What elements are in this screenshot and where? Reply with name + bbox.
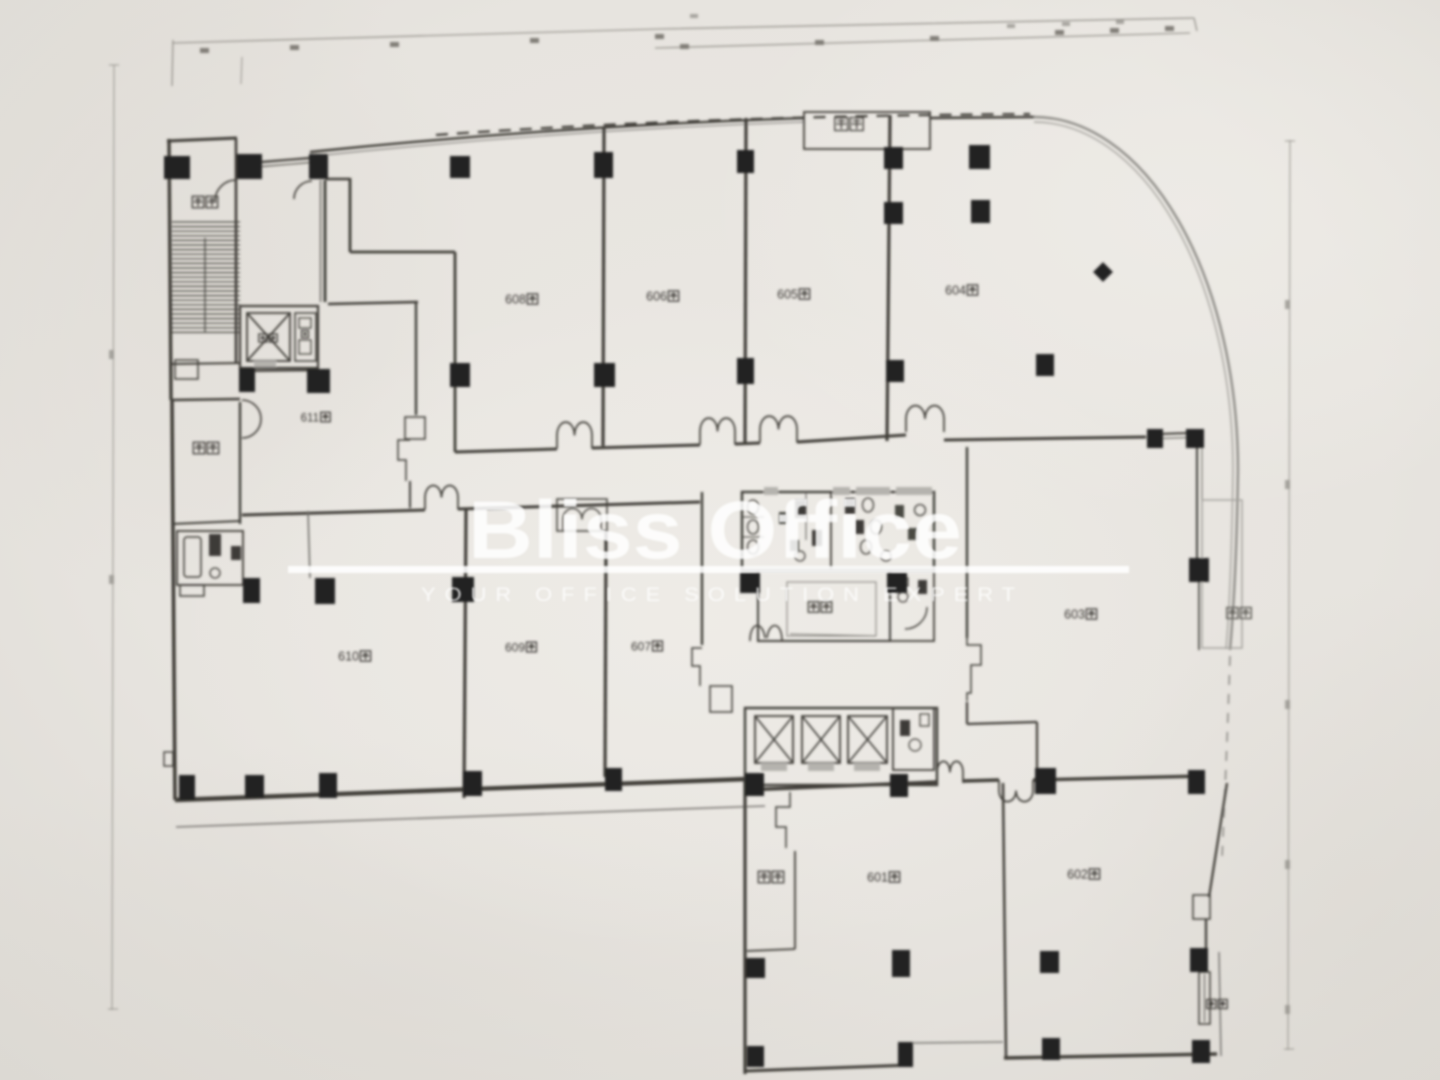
svg-text:609: 609 — [505, 640, 525, 654]
svg-text:605: 605 — [777, 287, 798, 301]
svg-text:610: 610 — [338, 649, 359, 663]
svg-text:603: 603 — [1064, 607, 1085, 621]
svg-text:Bliss Office: Bliss Office — [468, 485, 962, 576]
svg-text:608: 608 — [505, 292, 526, 306]
svg-text:604: 604 — [945, 283, 966, 297]
svg-text:YOUR OFFICE SOLUTION EXPERT: YOUR OFFICE SOLUTION EXPERT — [421, 584, 1024, 606]
svg-text:611: 611 — [301, 412, 319, 424]
svg-text:601: 601 — [867, 870, 888, 884]
svg-text:607: 607 — [631, 639, 651, 653]
svg-text:602: 602 — [1067, 867, 1088, 881]
svg-text:606: 606 — [646, 289, 667, 303]
